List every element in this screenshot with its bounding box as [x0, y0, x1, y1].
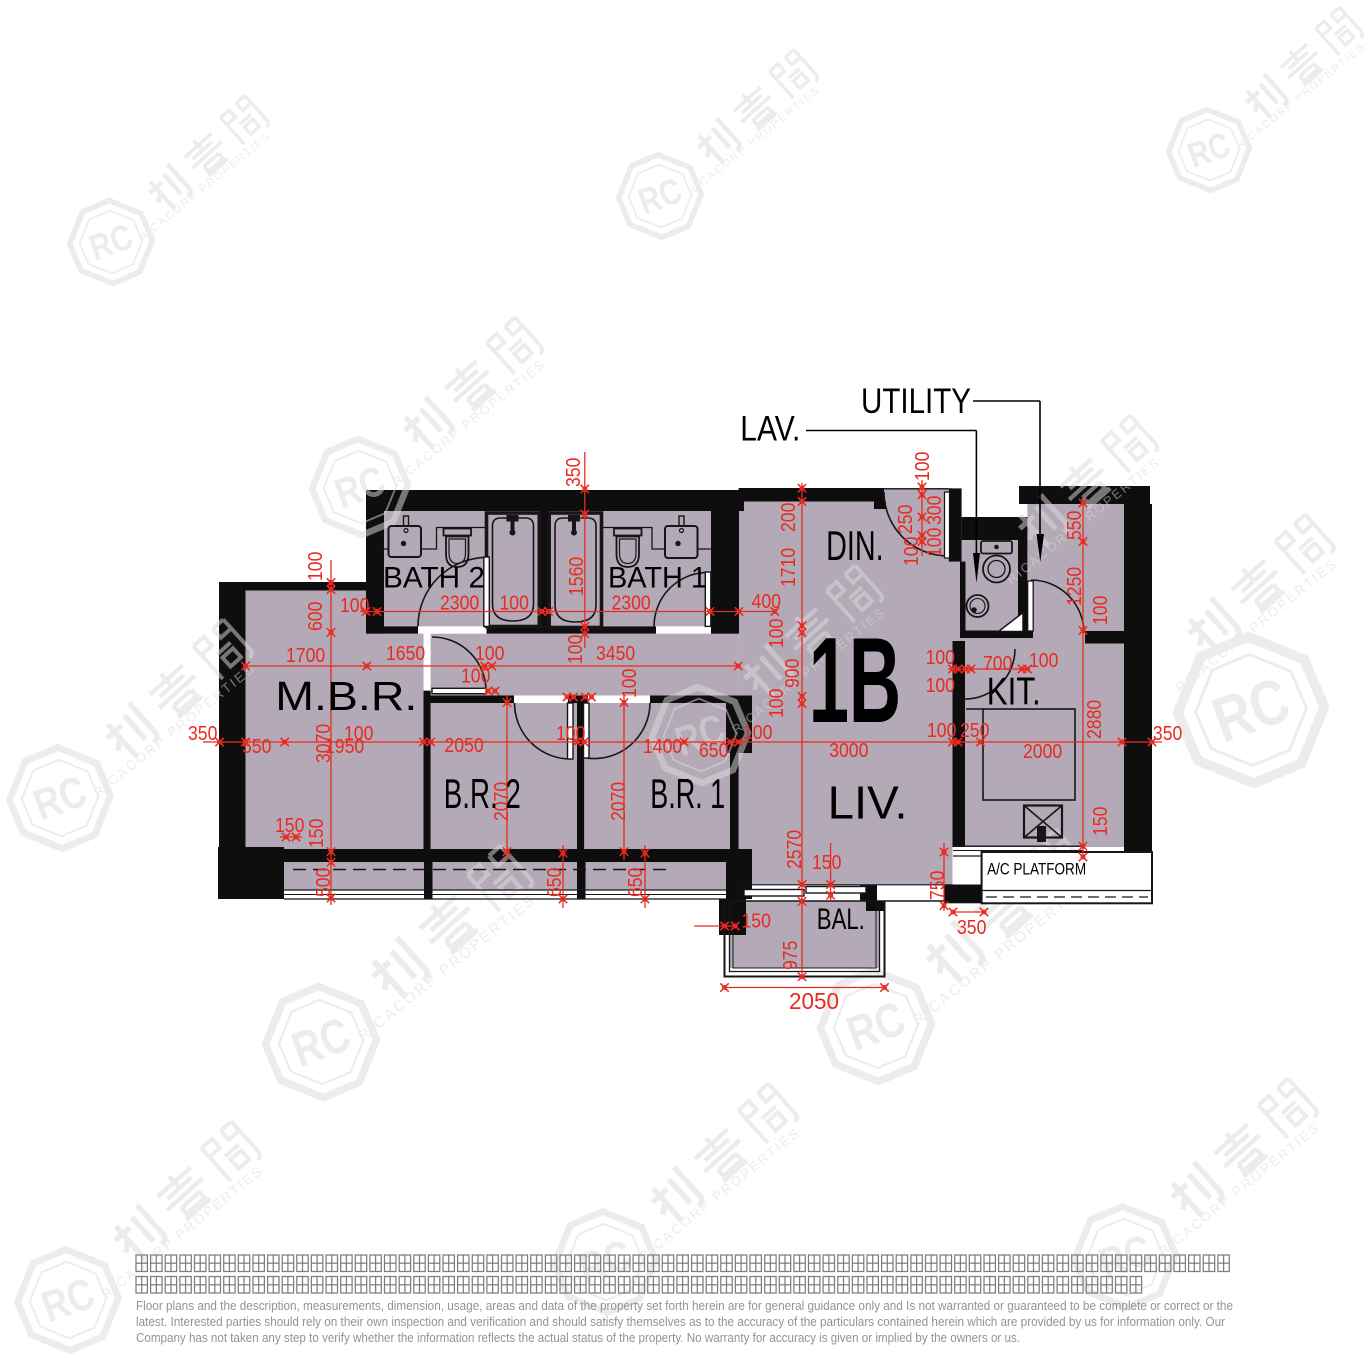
svg-text:3070: 3070	[312, 724, 335, 763]
svg-text:150: 150	[275, 814, 304, 837]
svg-text:350: 350	[562, 458, 585, 487]
svg-text:200: 200	[777, 503, 800, 532]
svg-text:DIN.: DIN.	[826, 522, 884, 569]
svg-text:2050: 2050	[445, 734, 484, 757]
svg-text:BATH 1: BATH 1	[608, 562, 707, 595]
svg-text:650: 650	[699, 739, 728, 762]
svg-text:M.B.R.: M.B.R.	[275, 673, 417, 719]
svg-text:100: 100	[556, 722, 585, 745]
svg-text:350: 350	[188, 722, 217, 745]
svg-text:3450: 3450	[596, 642, 635, 665]
svg-text:100: 100	[765, 689, 788, 718]
svg-text:100: 100	[475, 642, 504, 665]
svg-text:1250: 1250	[1063, 567, 1086, 606]
svg-text:1B: 1B	[809, 612, 902, 748]
svg-text:150: 150	[305, 819, 328, 848]
svg-text:100: 100	[461, 665, 490, 688]
svg-text:250: 250	[960, 719, 989, 742]
svg-text:100: 100	[500, 592, 529, 615]
svg-text:100: 100	[564, 635, 587, 664]
svg-text:100: 100	[900, 537, 923, 566]
svg-text:100: 100	[765, 619, 788, 648]
svg-text:100: 100	[926, 674, 955, 697]
svg-text:650: 650	[624, 868, 647, 897]
svg-text:750: 750	[926, 871, 949, 900]
svg-text:100: 100	[344, 722, 373, 745]
svg-text:2070: 2070	[607, 782, 630, 821]
svg-text:1700: 1700	[286, 644, 325, 667]
svg-text:LIV.: LIV.	[828, 776, 908, 828]
svg-text:2300: 2300	[440, 592, 479, 615]
svg-text:2300: 2300	[612, 592, 651, 615]
svg-text:550: 550	[242, 735, 271, 758]
svg-text:550: 550	[1063, 511, 1086, 540]
svg-text:350: 350	[957, 916, 986, 939]
svg-text:1710: 1710	[777, 548, 800, 587]
svg-text:latest. Interested parties sho: latest. Interested parties should rely o…	[136, 1315, 1225, 1329]
svg-text:150: 150	[812, 851, 841, 874]
svg-text:2050: 2050	[789, 988, 839, 1014]
svg-text:300: 300	[923, 496, 946, 525]
svg-text:2000: 2000	[1023, 740, 1062, 763]
svg-text:1650: 1650	[386, 642, 425, 665]
svg-text:Company has not taken any step: Company has not taken any step to verify…	[136, 1331, 1020, 1345]
svg-text:A/C PLATFORM: A/C PLATFORM	[987, 860, 1086, 879]
svg-text:Floor plans and the descriptio: Floor plans and the description, measure…	[136, 1299, 1233, 1313]
svg-text:600: 600	[304, 602, 327, 631]
svg-text:100: 100	[926, 646, 955, 669]
svg-text:150: 150	[1089, 807, 1112, 836]
svg-text:250: 250	[894, 505, 917, 534]
svg-text:B.R. 1: B.R. 1	[650, 770, 725, 817]
svg-text:2880: 2880	[1083, 700, 1106, 739]
svg-text:B.R. 2: B.R. 2	[444, 770, 521, 817]
svg-text:650: 650	[543, 868, 566, 897]
svg-text:100: 100	[911, 452, 934, 481]
svg-text:100: 100	[304, 552, 327, 581]
svg-text:100: 100	[927, 719, 956, 742]
svg-text:150: 150	[742, 910, 771, 933]
svg-text:100: 100	[923, 528, 946, 557]
svg-text:1560: 1560	[565, 557, 588, 596]
svg-text:100: 100	[1029, 649, 1058, 672]
svg-text:350: 350	[1153, 722, 1182, 745]
svg-text:100: 100	[743, 721, 772, 744]
svg-text:400: 400	[752, 590, 781, 613]
svg-text:BATH 2: BATH 2	[383, 562, 485, 595]
svg-text:100: 100	[340, 594, 369, 617]
svg-text:500: 500	[312, 868, 335, 897]
svg-text:1400: 1400	[643, 735, 682, 758]
svg-text:LAV.: LAV.	[740, 409, 800, 448]
svg-text:100: 100	[618, 669, 641, 698]
svg-text:100: 100	[1089, 596, 1112, 625]
svg-text:975: 975	[779, 941, 802, 970]
svg-text:BAL.: BAL.	[817, 903, 865, 936]
svg-text:UTILITY: UTILITY	[861, 381, 971, 421]
svg-text:2570: 2570	[783, 830, 806, 869]
svg-text:900: 900	[781, 659, 804, 688]
svg-text:KIT.: KIT.	[987, 671, 1041, 714]
